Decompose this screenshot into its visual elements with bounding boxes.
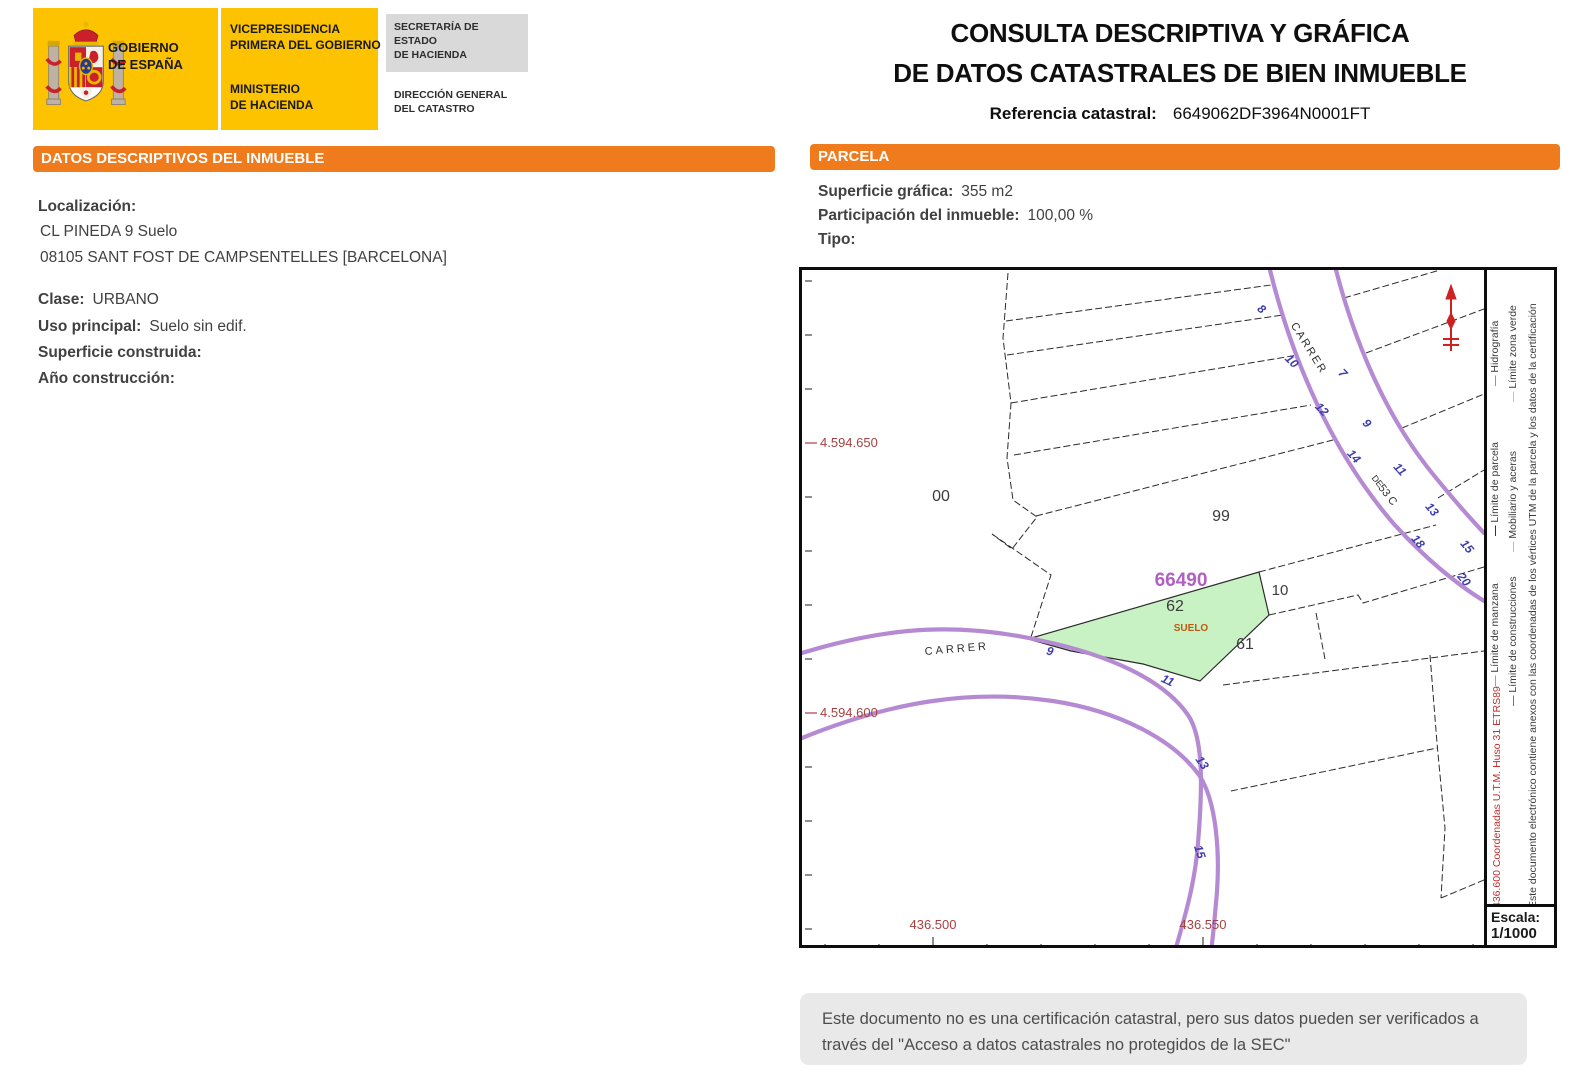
localizacion-label: Localización: [38, 198, 136, 216]
legend-limite-manzana: — Límite de manzana [1489, 583, 1501, 686]
certification-note: Este documento electrónico contiene anex… [1527, 303, 1539, 904]
title-line-2: DE DATOS CATASTRALES DE BIEN INMUEBLE [800, 60, 1560, 86]
anio-construccion-field: Año construcción: [38, 370, 183, 388]
cadastral-document: GOBIERNO DE ESPAÑA VICEPRESIDENCIA PRIME… [0, 0, 1588, 1080]
y-coordinate-label-2: 4.594.600 [820, 705, 878, 720]
mobiliario-line-icon: — [1507, 542, 1519, 553]
y-coordinate-label-1: 4.594.650 [820, 435, 878, 450]
legend-limite-zona-verde: — Límite zona verde [1507, 305, 1519, 402]
block-number-label: 66490 [1155, 570, 1208, 591]
x-coordinate-label-1: 436.500 [910, 917, 957, 932]
disclaimer-note: Este documento no es una certificación c… [800, 993, 1527, 1065]
parcel-label-10: 10 [1272, 582, 1289, 599]
street-name-b: CARRER [924, 640, 989, 658]
gobierno-de-espana-label: GOBIERNO DE ESPAÑA [108, 40, 183, 74]
legend-hidrografia: — Hidrografía [1489, 321, 1501, 386]
svg-text:15: 15 [1457, 537, 1477, 556]
cadastral-map-drawing: 4.594.650 4.594.600 436.500 436.550 00 9… [802, 270, 1484, 945]
superficie-construida-field: Superficie construida: [38, 344, 210, 362]
section-header-datos-descriptivos: DATOS DESCRIPTIVOS DEL INMUEBLE [33, 146, 775, 172]
parcel-label-99: 99 [1212, 508, 1230, 525]
map-legend-sidebar: — Límite de manzana — Límite de parcela … [1484, 270, 1554, 945]
zona-verde-line-icon: — [1507, 392, 1519, 403]
svg-text:9: 9 [1045, 644, 1055, 659]
svg-text:15: 15 [1191, 843, 1209, 860]
title-line-1: CONSULTA DESCRIPTIVA Y GRÁFICA [800, 20, 1560, 46]
construcciones-line-icon: — [1507, 696, 1519, 707]
vicepresidencia-label: VICEPRESIDENCIA PRIMERA DEL GOBIERNO [230, 22, 381, 53]
svg-text:9: 9 [1360, 416, 1375, 431]
superficie-grafica-field: Superficie gráfica:355 m2 [818, 183, 1013, 201]
referencia-value: 6649062DF3964N0001FT [1173, 104, 1371, 123]
svg-text:11: 11 [1391, 460, 1410, 479]
scale-box: Escala: 1/1000 [1487, 904, 1554, 945]
svg-text:10: 10 [1282, 351, 1302, 371]
svg-text:13: 13 [1422, 500, 1442, 519]
address-line-2: 08105 SANT FOST DE CAMPSENTELLES [BARCEL… [40, 249, 447, 267]
cadastral-map: 4.594.650 4.594.600 436.500 436.550 00 9… [799, 267, 1557, 948]
direccion-general-catastro-label: DIRECCIÓN GENERAL DEL CATASTRO [394, 88, 507, 116]
map-legend: — Límite de manzana — Límite de parcela … [1487, 270, 1554, 904]
legend-limite-parcela: — Límite de parcela [1489, 442, 1501, 536]
parcel-label-62: 62 [1166, 598, 1184, 615]
clase-field: Clase:URBANO [38, 291, 159, 309]
referencia-catastral: Referencia catastral:6649062DF3964N0001F… [800, 104, 1560, 124]
tipo-field: Tipo: [818, 231, 864, 249]
scale-value: 1/1000 [1491, 925, 1550, 942]
north-arrow-icon [1443, 285, 1459, 351]
svg-text:8: 8 [1255, 302, 1270, 317]
hidrografia-line-icon: — [1489, 376, 1501, 387]
referencia-label: Referencia catastral: [990, 104, 1157, 123]
parcela-line-icon: — [1489, 526, 1501, 537]
svg-text:20: 20 [1454, 569, 1474, 589]
parcel-label-00: 00 [932, 488, 950, 505]
document-title: CONSULTA DESCRIPTIVA Y GRÁFICA DE DATOS … [800, 14, 1560, 124]
section-header-parcela: PARCELA [810, 144, 1560, 170]
address-line-1: CL PINEDA 9 Suelo [40, 223, 177, 241]
scale-label: Escala: [1491, 909, 1550, 925]
secretaria-estado-label: SECRETARÍA DE ESTADO DE HACIENDA [386, 14, 528, 72]
participacion-field: Participación del inmueble:100,00 % [818, 207, 1093, 225]
parcel-label-61: 61 [1236, 636, 1254, 653]
suelo-tag-label: SUELO [1174, 623, 1209, 634]
utm-coordinates-note: 436.600 Coordenadas U.T.M. Huso 31 ETRS8… [1491, 686, 1503, 904]
uso-principal-field: Uso principal:Suelo sin edif. [38, 318, 247, 336]
x-coordinate-label-2: 436.550 [1180, 917, 1227, 932]
legend-limite-construcciones: — Límite de construcciones [1507, 576, 1519, 706]
manzana-line-icon: — [1489, 676, 1501, 687]
svg-text:7: 7 [1336, 366, 1352, 381]
ministerio-label: MINISTERIO DE HACIENDA [230, 82, 313, 113]
subject-parcel-polygon [1028, 572, 1269, 681]
svg-text:18: 18 [1408, 532, 1428, 551]
legend-mobiliario-aceras: — Mobiliario y aceras [1507, 451, 1519, 552]
